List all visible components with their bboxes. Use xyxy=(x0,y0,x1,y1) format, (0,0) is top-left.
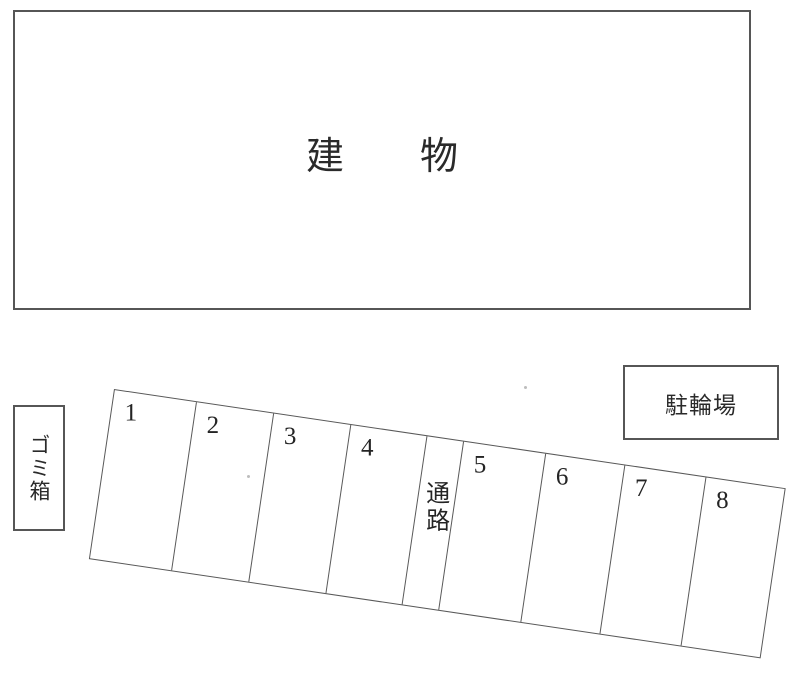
site-plan: 建 物 ゴミ箱 駐輪場 1 2 3 4 通路 5 6 7 8 xyxy=(0,0,805,678)
aisle-label: 通路 xyxy=(418,480,453,534)
building-label: 建 物 xyxy=(306,125,458,180)
trash-box-label: ゴミ箱 xyxy=(24,434,54,503)
trash-box-outline: ゴミ箱 xyxy=(13,405,65,531)
parking-stall-6-number: 6 xyxy=(556,462,569,492)
bicycle-parking-label: 駐輪場 xyxy=(665,386,737,420)
bicycle-parking-outline: 駐輪場 xyxy=(623,365,779,440)
parking-stall-7-number: 7 xyxy=(635,474,648,504)
parking-stall-8-number: 8 xyxy=(716,486,729,516)
scan-speck xyxy=(524,386,527,389)
parking-stall-2-number: 2 xyxy=(206,411,219,441)
scan-speck xyxy=(247,475,250,478)
parking-stall-5-number: 5 xyxy=(474,450,487,480)
parking-stall-4-number: 4 xyxy=(361,434,374,464)
parking-stall-3-number: 3 xyxy=(283,422,296,452)
building-outline: 建 物 xyxy=(13,10,751,310)
parking-stall-1-number: 1 xyxy=(125,399,138,429)
